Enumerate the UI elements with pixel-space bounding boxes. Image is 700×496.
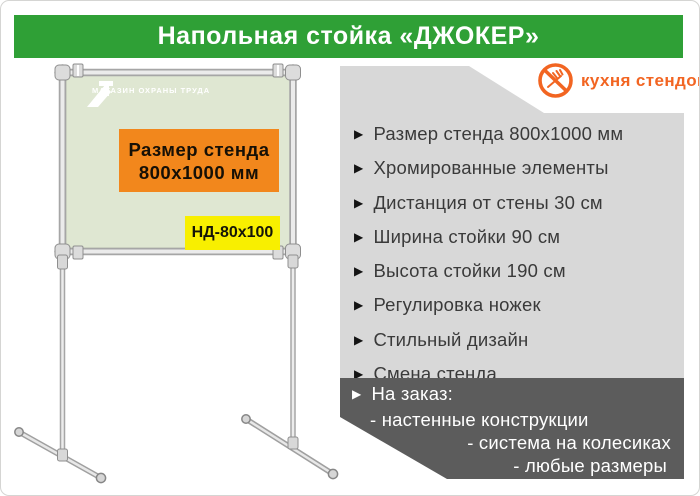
features-list: ▶Размер стенда 800х1000 мм ▶Хромированны… xyxy=(354,118,623,392)
custom-order-title: ▶На заказ: xyxy=(340,382,684,408)
custom-order-item: - любые размеры xyxy=(340,454,684,477)
size-label-line2: 800x1000 мм xyxy=(139,161,259,184)
size-label: Размер стенда 800x1000 мм xyxy=(119,129,279,192)
stand-frame-graphic xyxy=(9,56,354,496)
no-kitchen-icon xyxy=(537,62,574,99)
custom-order-item: - система на колесиках xyxy=(340,431,684,454)
custom-order-panel: ▶На заказ: - настенные конструкции - сис… xyxy=(340,378,684,479)
feature-item: ▶Размер стенда 800х1000 мм xyxy=(354,118,623,152)
feature-item: ▶Высота стойки 190 см xyxy=(354,255,623,289)
bullet-icon: ▶ xyxy=(354,188,363,219)
page-title: Напольная стойка «ДЖОКЕР» xyxy=(158,22,540,51)
header-banner: Напольная стойка «ДЖОКЕР» xyxy=(14,15,683,58)
poster: Напольная стойка «ДЖОКЕР» xyxy=(0,0,700,496)
bullet-icon: ▶ xyxy=(354,256,363,287)
shop-logo: МАГАЗИН ОХРАНЫ ТРУДА xyxy=(85,81,210,95)
custom-order-item: - настенные конструкции xyxy=(340,408,684,431)
size-label-line1: Размер стенда xyxy=(128,138,269,161)
feature-item: ▶Стильный дизайн xyxy=(354,324,623,358)
stand-illustration: МАГАЗИН ОХРАНЫ ТРУДА Размер стенда 800x1… xyxy=(9,56,354,496)
bullet-icon: ▶ xyxy=(354,119,363,150)
bullet-icon: ▶ xyxy=(354,290,363,321)
feature-item: ▶Дистанция от стены 30 см xyxy=(354,187,623,221)
bullet-icon: ▶ xyxy=(354,222,363,253)
bullet-icon: ▶ xyxy=(354,153,363,184)
shop-logo-icon xyxy=(85,81,115,109)
feature-item: ▶Хромированные элементы xyxy=(354,152,623,186)
feature-item: ▶Регулировка ножек xyxy=(354,289,623,323)
brand-logo: кухня стендов xyxy=(537,62,700,99)
bullet-icon: ▶ xyxy=(354,325,363,356)
model-label: НД-80x100 xyxy=(185,216,280,250)
features-panel: ▶Размер стенда 800х1000 мм ▶Хромированны… xyxy=(340,66,684,378)
brand-name: кухня стендов xyxy=(581,71,700,91)
bullet-icon: ▶ xyxy=(352,383,361,406)
feature-item: ▶Ширина стойки 90 см xyxy=(354,221,623,255)
